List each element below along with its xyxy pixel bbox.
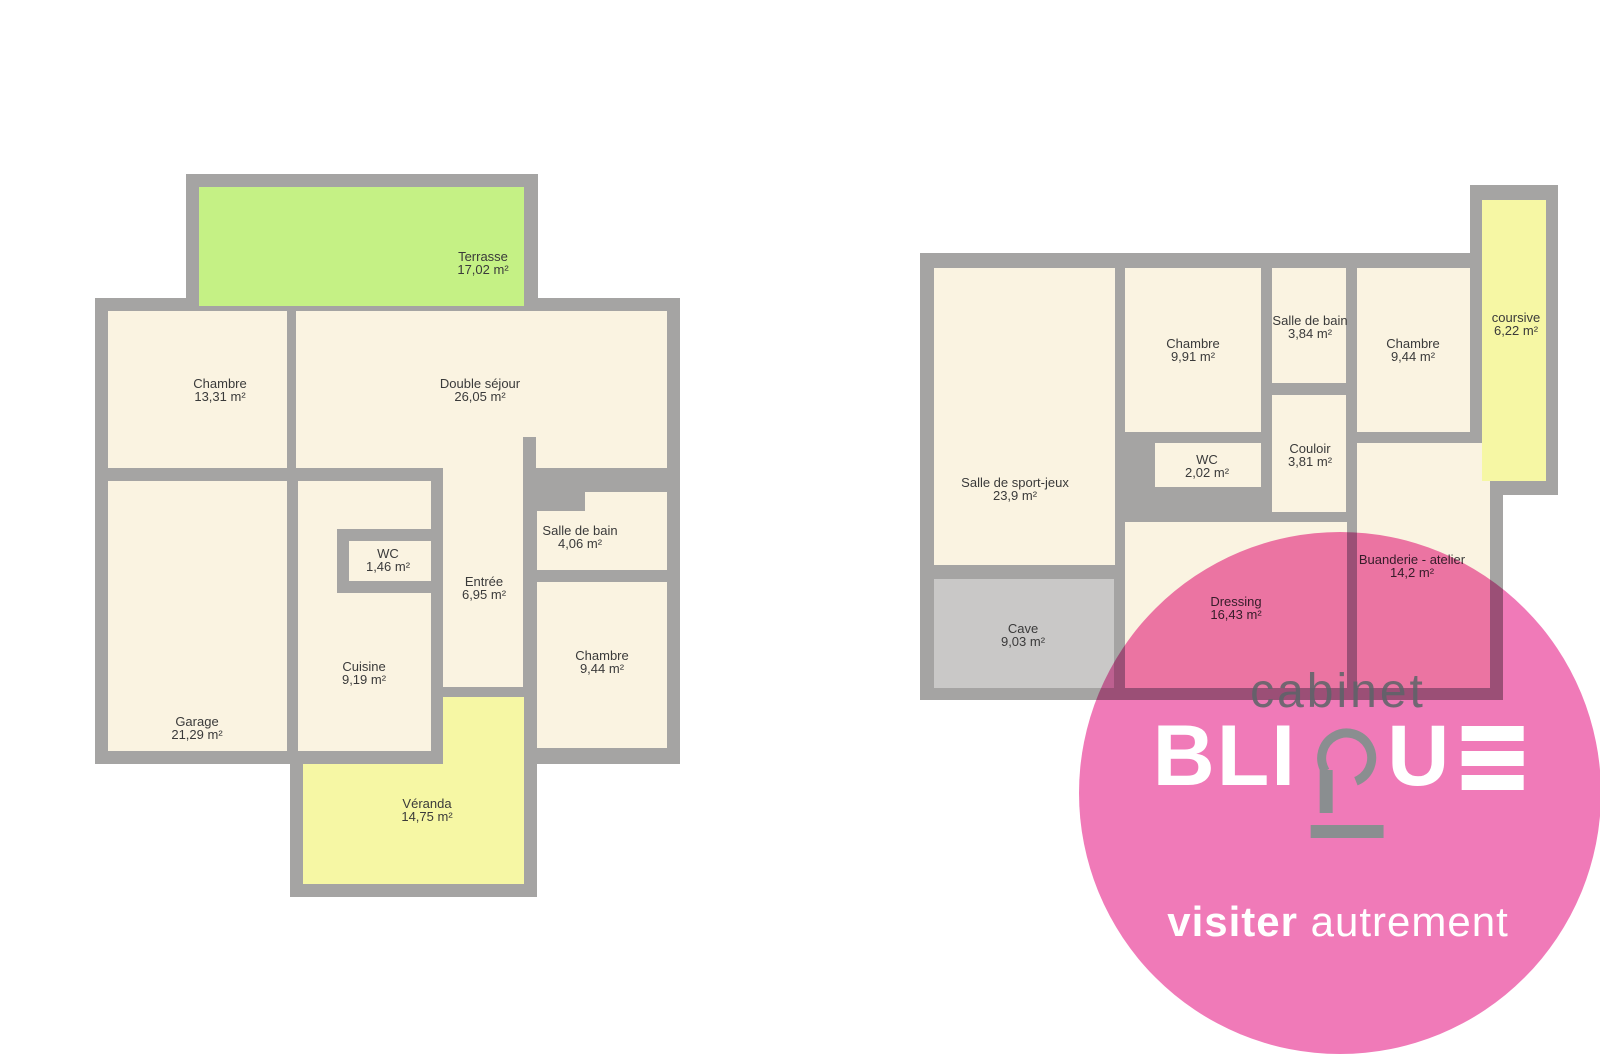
- tagline-bold-word: visiter: [1167, 898, 1298, 945]
- room-label: Chambre9,44 m²: [1386, 338, 1439, 363]
- room-label: Entrée6,95 m²: [462, 576, 506, 601]
- room-fill: [303, 764, 524, 884]
- room-area: 21,29 m²: [171, 729, 222, 742]
- room-fill: [298, 481, 431, 751]
- room-area: 9,03 m²: [1001, 636, 1045, 649]
- brand-tagline: visiter autrement: [1167, 898, 1509, 946]
- room-area: 26,05 m²: [440, 391, 520, 404]
- room-area: 3,81 m²: [1288, 456, 1332, 469]
- room-area: 6,95 m²: [462, 589, 506, 602]
- room-area: 9,19 m²: [342, 674, 386, 687]
- room-label: Couloir3,81 m²: [1288, 443, 1332, 468]
- wall-segment: [337, 581, 431, 593]
- room-area: 14,75 m²: [401, 811, 452, 824]
- room-label: Chambre9,91 m²: [1166, 338, 1219, 363]
- room-area: 3,84 m²: [1272, 328, 1347, 341]
- magnifier-q-icon: [1303, 722, 1383, 847]
- room-label: Salle de bain4,06 m²: [542, 525, 617, 550]
- room-label: coursive6,22 m²: [1492, 312, 1540, 337]
- stylized-e-glyph: [1461, 726, 1523, 790]
- room-label: Chambre9,44 m²: [575, 650, 628, 675]
- room-label: Véranda14,75 m²: [401, 798, 452, 823]
- room-fill: [199, 187, 524, 306]
- room-area: 9,91 m²: [1166, 351, 1219, 364]
- tagline-light-word: autrement: [1311, 898, 1509, 945]
- room-area: 6,22 m²: [1492, 325, 1540, 338]
- room-label: Chambre13,31 m²: [193, 378, 246, 403]
- floorplan-page: Terrasse17,02 m²Chambre13,31 m²Double sé…: [0, 0, 1600, 1059]
- room-area: 9,44 m²: [575, 663, 628, 676]
- room-area: 17,02 m²: [457, 264, 508, 277]
- room-area: 2,02 m²: [1185, 467, 1229, 480]
- room-area: 9,44 m²: [1386, 351, 1439, 364]
- room-fill: [1482, 200, 1546, 481]
- room-area: 13,31 m²: [193, 391, 246, 404]
- room-area: 1,46 m²: [366, 561, 410, 574]
- room-fill: [108, 481, 287, 751]
- room-area: 23,9 m²: [961, 490, 1069, 503]
- room-label: Salle de sport-jeux23,9 m²: [961, 477, 1069, 502]
- room-fill: [443, 697, 524, 764]
- room-label: Terrasse17,02 m²: [457, 251, 508, 276]
- room-fill: [934, 268, 1115, 565]
- room-label: Double séjour26,05 m²: [440, 378, 520, 403]
- room-label: WC2,02 m²: [1185, 454, 1229, 479]
- room-label: Cave9,03 m²: [1001, 623, 1045, 648]
- brand-logo-mid: U: [1387, 720, 1451, 792]
- room-label: WC1,46 m²: [366, 548, 410, 573]
- wall-segment: [537, 492, 585, 511]
- brand-logo: BLI U: [1153, 720, 1524, 847]
- brand-logo-prefix: BLI: [1153, 720, 1298, 792]
- room-label: Salle de bain3,84 m²: [1272, 315, 1347, 340]
- room-area: 4,06 m²: [542, 538, 617, 551]
- wall-segment: [523, 437, 536, 468]
- room-label: Garage21,29 m²: [171, 716, 222, 741]
- wall-segment: [337, 529, 431, 541]
- room-label: Cuisine9,19 m²: [342, 661, 386, 686]
